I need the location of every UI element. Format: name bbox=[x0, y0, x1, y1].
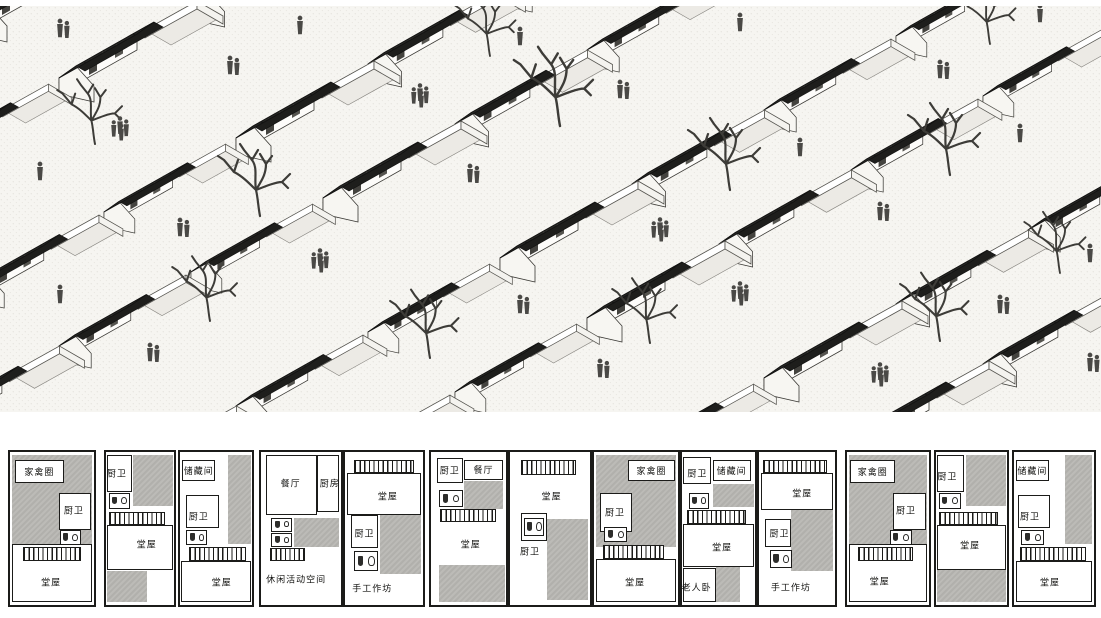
bathroom-fixture-icon bbox=[109, 493, 130, 508]
bathroom-fixture-icon bbox=[186, 530, 207, 545]
people-figures bbox=[297, 16, 303, 35]
courtyard-area bbox=[464, 481, 503, 509]
floor-plan-12: 厨卫堂屋 bbox=[934, 450, 1009, 607]
room-label: 老人卧 bbox=[682, 580, 712, 593]
courtyard-area bbox=[380, 515, 421, 575]
floor-plan-3: 储藏间厨卫堂屋 bbox=[178, 450, 254, 607]
floor-plan-9: 厨卫储藏间堂屋老人卧 bbox=[680, 450, 757, 607]
stairs-icon bbox=[109, 512, 165, 526]
floor-plan-5: 堂屋厨卫手工作坊 bbox=[343, 450, 425, 607]
room-label: 堂屋 bbox=[870, 574, 890, 587]
people-figures bbox=[57, 285, 63, 304]
courtyard-area bbox=[107, 571, 147, 602]
room-label: 手工作坊 bbox=[352, 582, 392, 595]
room-label: 厨卫 bbox=[520, 545, 540, 558]
bathroom-fixture-icon bbox=[439, 490, 462, 507]
room-label: 堂屋 bbox=[625, 576, 645, 589]
room-label: 厨卫 bbox=[64, 504, 84, 517]
people-figures bbox=[737, 13, 743, 32]
floor-plan-8: 家禽圈厨卫堂屋 bbox=[592, 450, 680, 607]
floor-plan-10: 堂屋厨卫手工作坊 bbox=[757, 450, 837, 607]
people-figures bbox=[1017, 124, 1023, 143]
room-label: 家禽圈 bbox=[24, 465, 54, 478]
floor-plan-4: 餐厅厨房休闲活动空间 bbox=[259, 450, 343, 607]
floor-plan-11: 家禽圈厨卫堂屋 bbox=[845, 450, 931, 607]
architectural-board: 家禽圈厨卫堂屋厨卫堂屋储藏间厨卫堂屋餐厅厨房休闲活动空间堂屋厨卫手工作坊厨卫餐厅… bbox=[0, 0, 1101, 618]
stairs-icon bbox=[858, 547, 912, 561]
room-label: 厨卫 bbox=[605, 505, 625, 518]
room-label: 储藏间 bbox=[717, 464, 747, 477]
room-label: 堂屋 bbox=[960, 539, 980, 552]
courtyard-area bbox=[439, 565, 505, 602]
room-label: 厨房 bbox=[320, 476, 340, 489]
stairs-icon bbox=[189, 547, 247, 561]
room-label-box: 餐厅 bbox=[464, 460, 503, 480]
stairs-icon bbox=[23, 547, 81, 561]
room-label: 堂屋 bbox=[542, 490, 562, 503]
stairs-icon bbox=[440, 509, 496, 523]
room-label-box: 储藏间 bbox=[713, 460, 751, 481]
village-axonometric-illustration bbox=[0, 6, 1101, 412]
courtyard-area bbox=[294, 518, 340, 547]
stairs-icon bbox=[763, 460, 828, 474]
bathroom-fixture-icon bbox=[271, 533, 292, 547]
floor-plan-6: 厨卫餐厅堂屋 bbox=[429, 450, 508, 607]
floor-plan-2: 厨卫堂屋 bbox=[104, 450, 176, 607]
room-label: 厨卫 bbox=[440, 464, 460, 477]
people-figures bbox=[37, 162, 43, 181]
stairs-icon bbox=[687, 510, 746, 524]
people-figures bbox=[797, 138, 803, 157]
room-label: 堂屋 bbox=[712, 540, 732, 553]
bathroom-fixture-icon bbox=[271, 518, 292, 532]
stairs-icon bbox=[521, 460, 575, 475]
courtyard-area bbox=[228, 455, 251, 544]
room-label: 堂屋 bbox=[137, 537, 157, 550]
room-label: 餐厅 bbox=[473, 463, 493, 476]
stairs-icon bbox=[354, 460, 415, 474]
courtyard-area bbox=[716, 567, 740, 602]
people-figures bbox=[517, 27, 523, 46]
stairs-icon bbox=[270, 548, 305, 560]
room-label: 厨卫 bbox=[107, 467, 127, 480]
room-label: 储藏间 bbox=[1017, 464, 1047, 477]
floor-plan-13: 储藏间厨卫堂屋 bbox=[1012, 450, 1096, 607]
room-label: 堂屋 bbox=[461, 537, 481, 550]
courtyard-area bbox=[791, 510, 834, 571]
bathroom-fixture-icon bbox=[689, 493, 709, 508]
room-label-box: 储藏间 bbox=[1016, 460, 1050, 481]
room-label-box: 储藏间 bbox=[182, 460, 215, 481]
room-label-box: 家禽圈 bbox=[628, 460, 674, 481]
courtyard-area bbox=[966, 455, 1006, 505]
bathroom-fixture-icon bbox=[770, 550, 793, 568]
room-label: 堂屋 bbox=[212, 576, 232, 589]
room-label: 堂屋 bbox=[41, 576, 61, 589]
floor-plan-1: 家禽圈厨卫堂屋 bbox=[8, 450, 96, 607]
stairs-icon bbox=[1020, 547, 1086, 561]
people-figures bbox=[1087, 244, 1093, 263]
room-label: 厨卫 bbox=[770, 527, 790, 540]
room-label-box: 家禽圈 bbox=[850, 460, 895, 483]
room-label: 厨卫 bbox=[896, 504, 916, 517]
room-label: 堂屋 bbox=[792, 487, 812, 500]
courtyard-area bbox=[713, 484, 753, 507]
room-label: 休闲活动空间 bbox=[266, 572, 326, 585]
room-label: 厨卫 bbox=[1020, 510, 1040, 523]
room-label: 厨卫 bbox=[687, 467, 707, 480]
stairs-icon bbox=[939, 512, 998, 526]
bathroom-fixture-icon bbox=[354, 551, 377, 571]
stairs-icon bbox=[603, 545, 663, 559]
floor-plan-7: 堂屋厨卫 bbox=[508, 450, 592, 607]
floor-plans-strip: 家禽圈厨卫堂屋厨卫堂屋储藏间厨卫堂屋餐厅厨房休闲活动空间堂屋厨卫手工作坊厨卫餐厅… bbox=[0, 450, 1101, 607]
room-label: 厨卫 bbox=[189, 510, 209, 523]
room-label: 餐厅 bbox=[281, 476, 301, 489]
room-label: 储藏间 bbox=[184, 464, 214, 477]
bathroom-fixture-icon bbox=[1021, 530, 1044, 545]
room-label: 堂屋 bbox=[1040, 576, 1060, 589]
room-label: 家禽圈 bbox=[858, 465, 888, 478]
courtyard-area bbox=[133, 455, 172, 505]
room-label: 手工作坊 bbox=[771, 580, 811, 593]
courtyard-area bbox=[937, 570, 1005, 602]
room-label: 厨卫 bbox=[354, 527, 374, 540]
room-label: 堂屋 bbox=[378, 490, 398, 503]
bathroom-fixture-icon bbox=[604, 527, 627, 542]
room-label: 厨卫 bbox=[937, 470, 957, 483]
bathroom-fixture-icon bbox=[524, 518, 545, 536]
bathroom-fixture-icon bbox=[939, 493, 961, 508]
courtyard-area bbox=[547, 519, 589, 600]
courtyard-area bbox=[1065, 455, 1092, 544]
room-label: 家禽圈 bbox=[637, 464, 667, 477]
room-label-box: 家禽圈 bbox=[15, 460, 64, 483]
